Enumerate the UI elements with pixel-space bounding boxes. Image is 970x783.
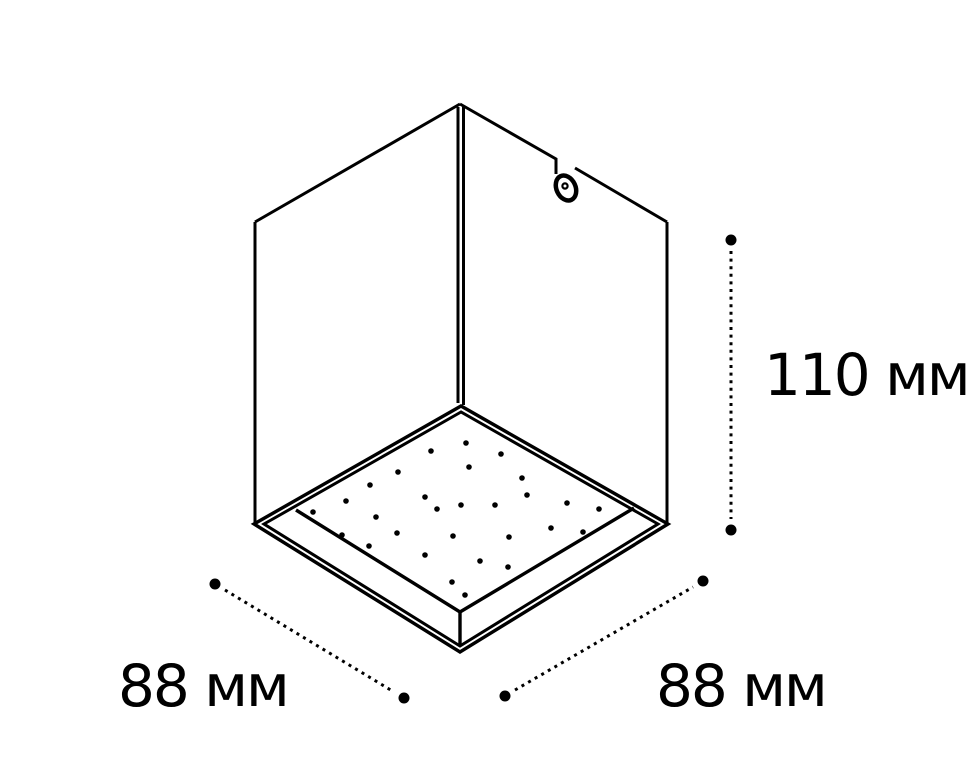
dimension-endpoint-dot xyxy=(399,693,410,704)
product-dimension-drawing: 110 мм 88 мм 88 мм xyxy=(0,0,970,783)
led-dot xyxy=(434,506,440,512)
led-dot xyxy=(422,552,428,558)
led-dot xyxy=(422,494,428,500)
led-dot xyxy=(373,514,379,520)
led-dot-grid xyxy=(310,440,602,598)
fixture-diagram-svg: 110 мм 88 мм 88 мм xyxy=(0,0,970,783)
top-left-edge xyxy=(255,104,460,222)
led-dot xyxy=(463,440,469,446)
dimension-height: 110 мм xyxy=(726,235,969,536)
dimension-endpoint-dot xyxy=(698,576,709,587)
led-dot xyxy=(462,592,468,598)
led-dot xyxy=(466,464,472,470)
led-dot xyxy=(343,498,349,504)
led-dot xyxy=(580,529,586,535)
led-dot xyxy=(498,451,504,457)
dimension-endpoint-dot xyxy=(726,235,737,246)
dimension-endpoint-dot xyxy=(726,525,737,536)
led-dot xyxy=(519,475,525,481)
height-dimension-label: 110 мм xyxy=(764,341,969,409)
led-dot xyxy=(428,448,434,454)
front-corner-edge xyxy=(458,107,464,405)
mounting-eyelet xyxy=(552,172,580,204)
width-left-dimension-label: 88 мм xyxy=(118,652,288,720)
eyelet-hole xyxy=(562,183,567,188)
led-dot xyxy=(310,509,316,515)
led-dot xyxy=(449,579,455,585)
led-dot xyxy=(366,543,372,549)
dimension-width-left: 88 мм xyxy=(118,579,410,721)
led-dot xyxy=(564,500,570,506)
dimension-endpoint-dot xyxy=(210,579,221,590)
led-dot xyxy=(505,564,511,570)
led-dot xyxy=(506,534,512,540)
led-dot xyxy=(394,530,400,536)
led-dot xyxy=(395,469,401,475)
led-dot xyxy=(458,502,464,508)
dimension-endpoint-dot xyxy=(500,691,511,702)
led-dot xyxy=(596,506,602,512)
led-dot xyxy=(367,482,373,488)
fixture-body xyxy=(255,104,667,524)
width-right-dimension-label: 88 мм xyxy=(656,652,826,720)
led-dot xyxy=(524,492,530,498)
top-right-edge xyxy=(460,104,667,222)
led-dot xyxy=(339,532,345,538)
led-dot xyxy=(477,558,483,564)
led-dot xyxy=(492,502,498,508)
bottom-rim xyxy=(254,406,668,652)
led-dot xyxy=(450,533,456,539)
led-dot xyxy=(548,525,554,531)
